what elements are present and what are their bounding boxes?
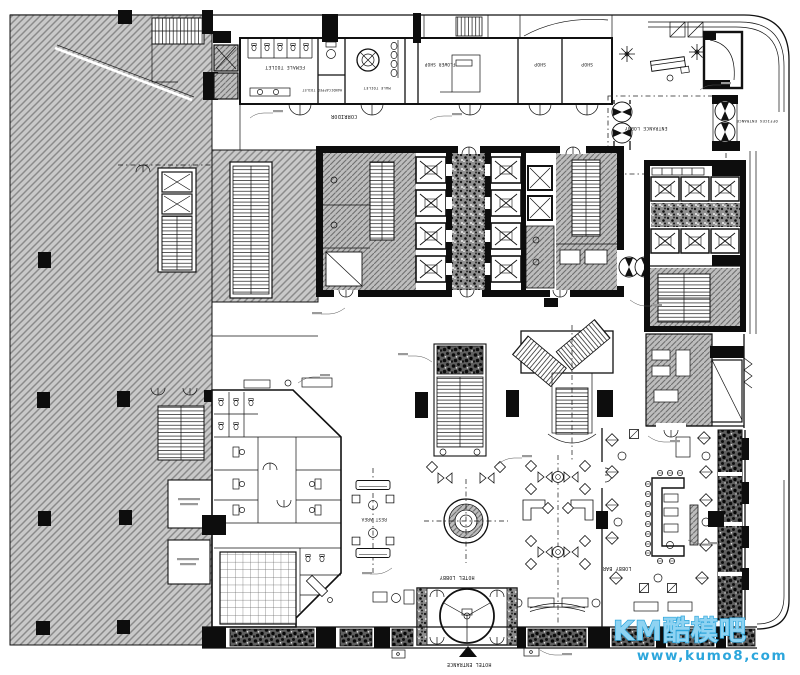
revolving-door <box>440 589 494 643</box>
service-kitchen <box>646 334 752 437</box>
female-toilet-label: FEMALE TOILET <box>265 64 305 70</box>
corridor-label: CORRIDOR <box>330 113 357 119</box>
watermark-logo: KM酷模吧 <box>613 616 747 647</box>
lobby-bar-label: LOBBY BAR <box>603 565 632 571</box>
rest-area-label: REST AREA <box>361 517 387 522</box>
bar-counter <box>645 470 684 563</box>
corridor: CORRIDOR <box>240 100 632 150</box>
elevator-core <box>316 145 624 307</box>
offices-entrance-door <box>712 95 740 151</box>
luggage-room <box>220 552 296 624</box>
back-office-block <box>202 390 341 627</box>
store-room <box>168 540 210 584</box>
male-toilet-label: MALE TOILET <box>363 86 391 90</box>
escalator-water-feature <box>434 344 486 456</box>
fountain <box>424 479 508 563</box>
grand-staircase <box>506 320 613 462</box>
handicapped-toilet-label: HANDICAPPED TOILET <box>302 88 342 92</box>
corner-room <box>704 32 742 88</box>
hotel-lobby-label: HOTEL LOBBY <box>439 574 474 580</box>
shop-b-label: SHOP <box>581 61 593 67</box>
floor-plan-sheet: FEMALE TOILET HANDICAPPED TOILET MALE TO… <box>0 0 800 675</box>
flower-shop-label: FLOWER SHOP <box>424 62 455 67</box>
toilet-block: FEMALE TOILET HANDICAPPED TOILET MALE TO… <box>214 38 612 104</box>
lobby-bar: LOBBY BAR <box>596 428 749 627</box>
reception-desk <box>650 56 689 77</box>
shop-a-label: SHOP <box>534 61 546 67</box>
elevator-lobby-floor <box>452 153 485 290</box>
watermark-url: www,kumo8,com <box>637 648 787 664</box>
entrance-lobby-label: ENTRANCE LOBBY <box>625 125 668 131</box>
stair-lower <box>158 406 204 460</box>
floor-plan-drawing: FEMALE TOILET HANDICAPPED TOILET MALE TO… <box>0 0 800 675</box>
offices-entrance-label: OFFICES ENTRANCE <box>736 119 778 124</box>
hotel-entrance-label: HOTEL ENTRANCE <box>447 661 492 667</box>
service-shaft <box>158 168 196 272</box>
stair-mid <box>230 162 272 298</box>
rest-area: REST AREA <box>348 468 398 575</box>
watermark: KM酷模吧 www,kumo8,com <box>613 616 787 664</box>
